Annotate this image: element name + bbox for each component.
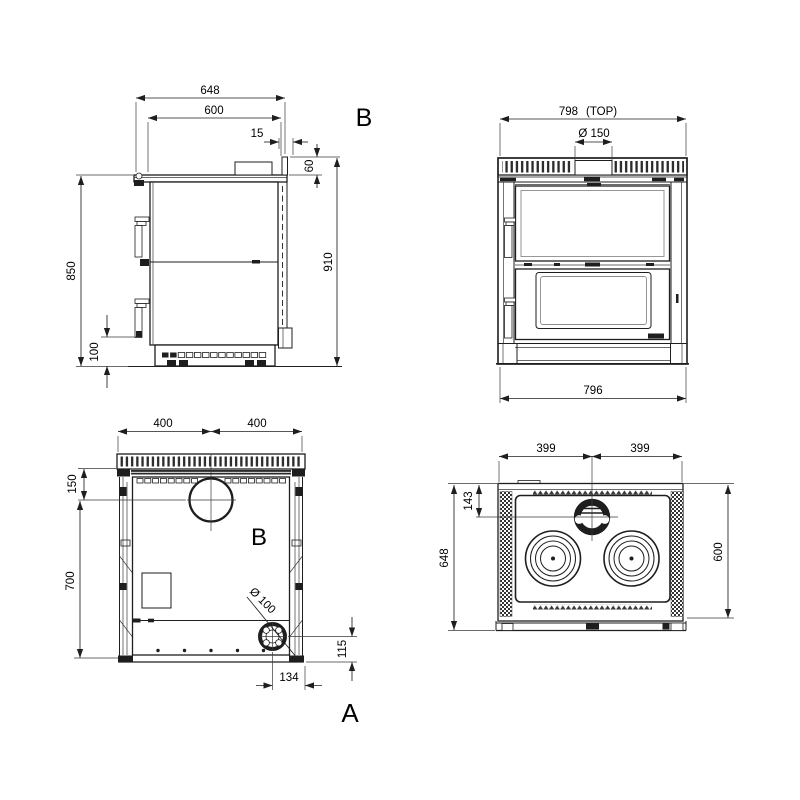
technical-drawing-canvas: 648 600 15 60 [0, 0, 800, 800]
dim-648: 648 [200, 85, 219, 97]
dim-flue-diameter: Ø 150 [578, 128, 609, 140]
dim-143: 143 [463, 491, 475, 510]
cooktop-slab [134, 175, 287, 182]
right-trivet-rail [671, 492, 683, 617]
top-view: 399 399 143 648 600 [439, 443, 734, 631]
rear-access-plate [142, 573, 171, 608]
dim-600-plate: 600 [713, 542, 725, 561]
nameplate [648, 334, 664, 339]
flue-collar-side [235, 162, 272, 175]
side-view-body [128, 157, 342, 367]
top-view-base-edge [496, 621, 686, 631]
dim-134: 134 [279, 672, 299, 684]
dim-910: 910 [323, 252, 335, 271]
hinge-block [134, 180, 144, 186]
dim-648-depth: 648 [439, 548, 451, 567]
left-trivet-rail [500, 492, 512, 617]
dim-400-right: 400 [247, 418, 266, 430]
rear-view-body [117, 454, 305, 663]
dim-850: 850 [66, 261, 78, 280]
hinge-pin [136, 173, 142, 179]
upper-door [516, 186, 670, 261]
dim-60: 60 [304, 160, 316, 173]
rear-view: 400 400 150 700 Ø 100 115 [65, 418, 359, 728]
rear-label-b: B [251, 524, 267, 551]
dim-150: 150 [67, 474, 79, 493]
rear-left-channel [120, 477, 133, 662]
dim-399-right: 399 [630, 443, 649, 455]
dim-15: 15 [251, 128, 264, 140]
back-lip [282, 157, 288, 175]
upper-door-handle-side [135, 217, 149, 266]
top-serration [533, 490, 652, 495]
dim-100: 100 [89, 342, 101, 361]
dim-700: 700 [65, 571, 77, 590]
bottom-serration [533, 605, 652, 610]
dim-798: 798 [559, 106, 578, 118]
back-bottom-box [279, 328, 293, 348]
section-label-b: B [356, 104, 373, 132]
flue-housing-front [575, 161, 612, 176]
side-view: 648 600 15 60 [66, 85, 372, 388]
dim-115: 115 [337, 640, 349, 658]
dim-399-left: 399 [536, 443, 555, 455]
front-view-body [496, 158, 689, 364]
rear-outlet [259, 622, 287, 651]
dim-400-left: 400 [153, 418, 172, 430]
rear-right-channel [290, 477, 303, 662]
latch-mark [676, 294, 679, 303]
top-view-body [476, 457, 686, 631]
dim-600: 600 [204, 105, 223, 117]
stove-dimension-drawing: 648 600 15 60 [0, 0, 800, 800]
rear-label-a: A [341, 698, 359, 728]
dim-796: 796 [583, 385, 602, 397]
dim-798-note: (TOP) [586, 106, 617, 118]
lower-door-handle-side [135, 299, 149, 338]
front-view: 798 (TOP) Ø 150 796 [496, 106, 689, 403]
